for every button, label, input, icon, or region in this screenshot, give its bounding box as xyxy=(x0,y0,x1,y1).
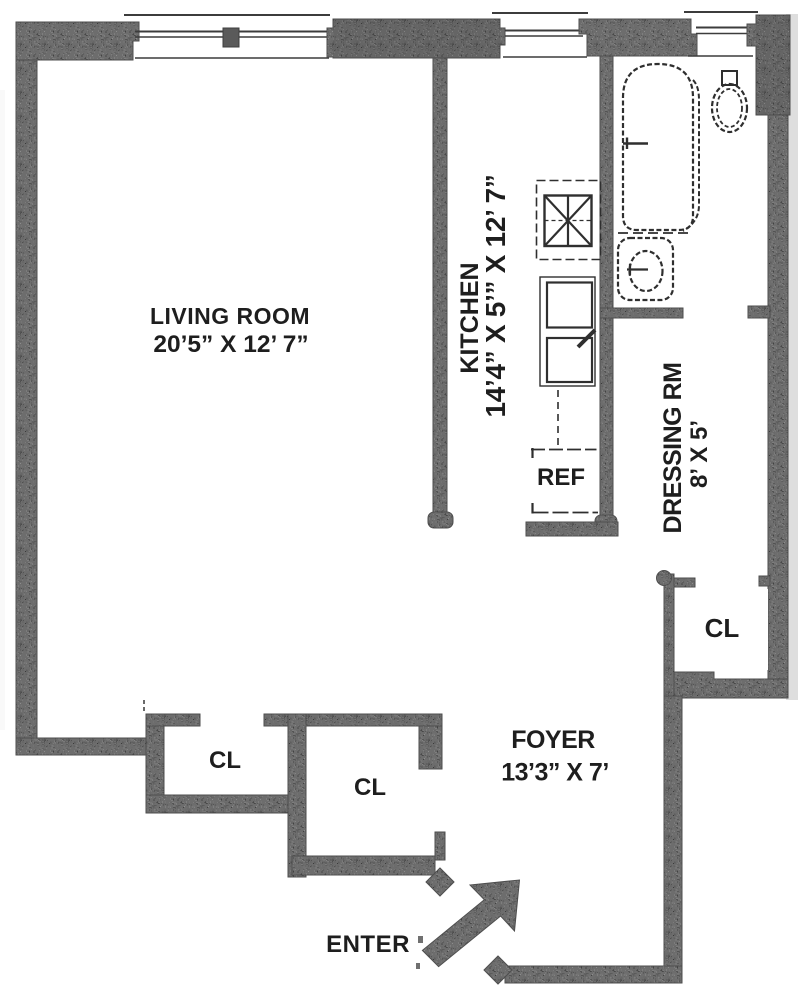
svg-text:13’3” X 7’: 13’3” X 7’ xyxy=(501,759,609,787)
svg-text:CL: CL xyxy=(705,613,740,643)
svg-text:CL: CL xyxy=(209,747,241,774)
svg-text:ENTER: ENTER xyxy=(326,931,410,958)
svg-text:14’4” X 5’” X 12’ 7”: 14’4” X 5’” X 12’ 7” xyxy=(480,174,511,417)
svg-text:20’5” X 12’ 7”: 20’5” X 12’ 7” xyxy=(153,331,308,358)
svg-text:LIVING ROOM: LIVING ROOM xyxy=(150,303,310,329)
svg-text:8’ X 5’: 8’ X 5’ xyxy=(686,420,713,488)
svg-text:FOYER: FOYER xyxy=(511,726,595,754)
svg-text:REF: REF xyxy=(537,464,585,491)
svg-text:DRESSING RM: DRESSING RM xyxy=(659,363,687,534)
svg-text:CL: CL xyxy=(354,774,386,801)
